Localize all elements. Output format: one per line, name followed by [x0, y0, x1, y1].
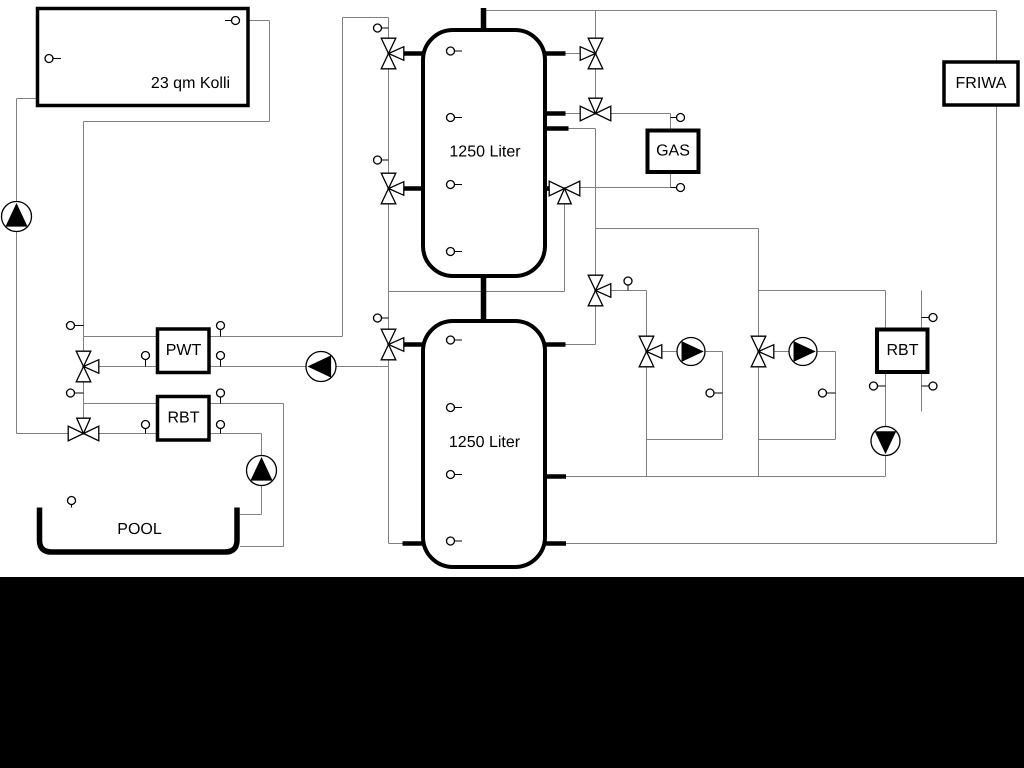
svg-text:RBT: RBT [887, 342, 919, 359]
svg-text:RBT: RBT [168, 410, 200, 427]
svg-text:1250 Liter: 1250 Liter [449, 144, 521, 161]
svg-text:POOL: POOL [117, 521, 162, 538]
svg-text:FRIWA: FRIWA [956, 75, 1007, 92]
svg-text:PWT: PWT [166, 342, 202, 359]
svg-text:23 qm Kolli: 23 qm Kolli [151, 75, 230, 92]
svg-text:1250 Liter: 1250 Liter [449, 434, 521, 451]
svg-text:GAS: GAS [656, 143, 690, 160]
